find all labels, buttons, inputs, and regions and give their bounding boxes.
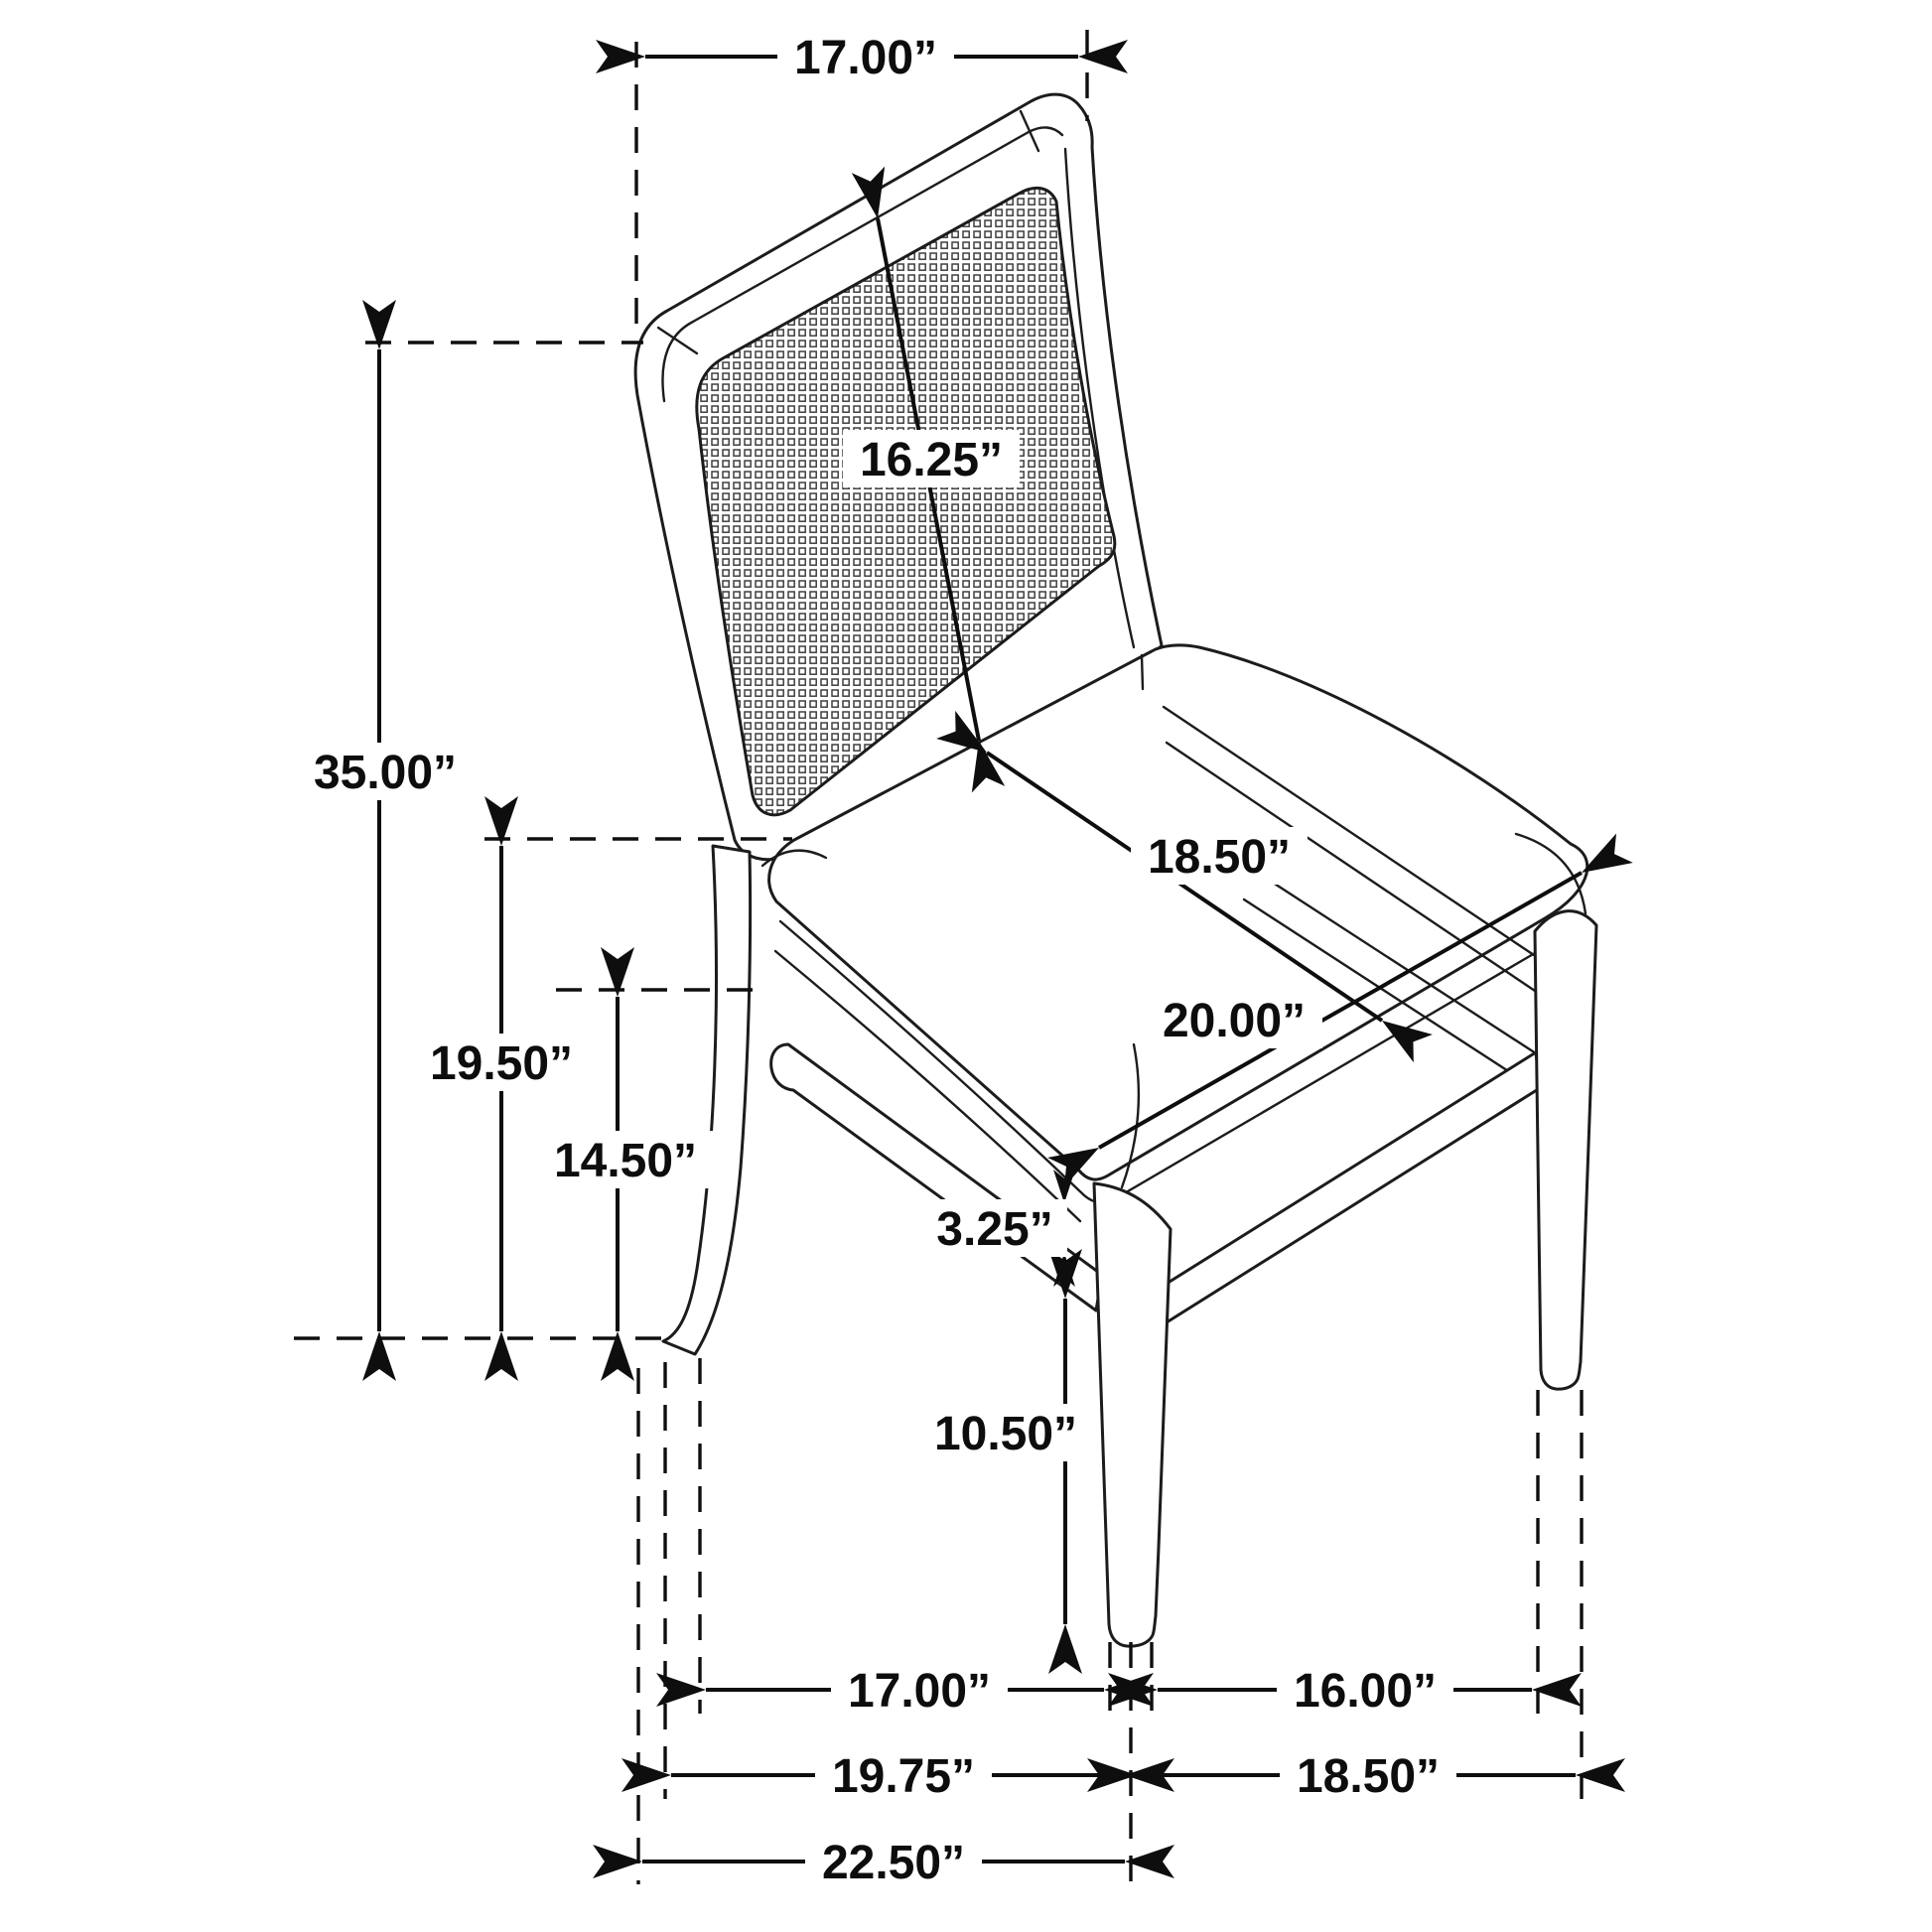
seat-corner-seam: [1142, 655, 1143, 689]
label-stretcher-gap: 3.25”: [936, 1203, 1052, 1256]
label-leg-span-side-inner: 17.00”: [848, 1665, 991, 1718]
label-leg-span-side: 19.75”: [832, 1750, 975, 1803]
label-back-panel-height: 16.25”: [860, 434, 1003, 486]
label-seat-height: 19.50”: [430, 1037, 573, 1090]
label-leg-span-front: 18.50”: [1297, 1750, 1440, 1803]
label-overall-depth: 22.50”: [822, 1837, 965, 1889]
label-back-top-width: 17.00”: [794, 32, 937, 84]
label-seat-frame-height: 14.50”: [554, 1135, 697, 1187]
label-leg-span-front-inner: 16.00”: [1294, 1665, 1437, 1718]
label-seat-depth: 18.50”: [1148, 831, 1291, 884]
dimension-diagram-page: 17.00” 16.25” 35.00” 19.50” 14.50” 18.50…: [0, 0, 1932, 1932]
chair-dimension-diagram: 17.00” 16.25” 35.00” 19.50” 14.50” 18.50…: [0, 0, 1932, 1932]
label-overall-height: 35.00”: [314, 747, 457, 799]
label-seat-width: 20.00”: [1163, 995, 1306, 1047]
label-leg-clearance: 10.50”: [934, 1408, 1077, 1460]
